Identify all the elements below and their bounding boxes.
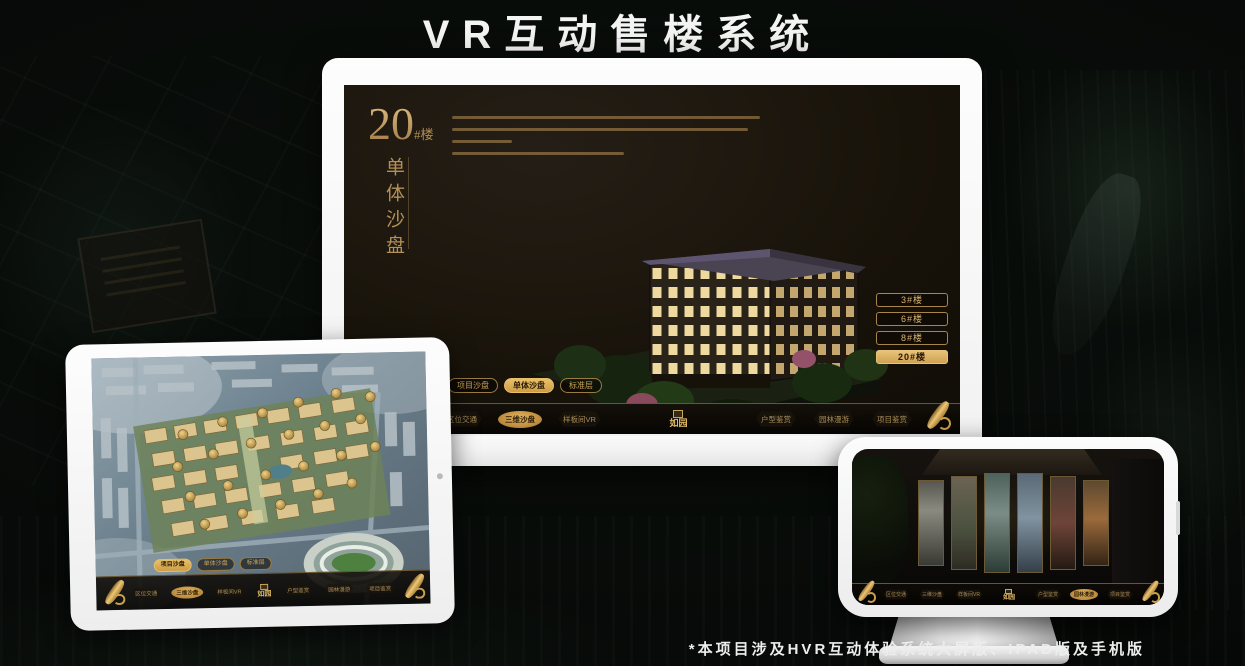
mode-tab-label: 单体沙盘 <box>204 561 228 568</box>
page-title: VR互动售楼系统 <box>0 2 1245 60</box>
nav-item[interactable]: 区位交通 <box>882 589 910 600</box>
building-number: 20 <box>368 98 414 149</box>
nav-item[interactable]: 园林漫游 <box>812 411 856 428</box>
mode-tab-label: 单体沙盘 <box>513 381 545 390</box>
mode-tab[interactable]: 项目沙盘 <box>448 378 498 393</box>
floor-button-label: 8#楼 <box>901 333 923 343</box>
gallery-panel[interactable] <box>984 473 1010 573</box>
phone-screen: 区位交通三维沙盘样板间VR 如园 户型鉴赏园林漫游项目鉴赏 <box>852 449 1164 605</box>
monitor-tab-group: 项目沙盘单体沙盘标准层 <box>448 378 602 393</box>
ruyuan-logo-text: 如园 <box>1003 595 1015 601</box>
floor-button-group: 3#楼6#楼8#楼20#楼 <box>876 293 948 364</box>
description-line <box>452 140 512 143</box>
phone-nav-right: 户型鉴赏园林漫游项目鉴赏 <box>1034 589 1134 600</box>
tablet-device: 项目沙盘单体沙盘标准层 区位交通三维沙盘样板间VR 如园 户型鉴赏园林漫游项目鉴… <box>65 337 455 631</box>
mode-tab-label: 项目沙盘 <box>457 381 489 390</box>
nav-item-label: 样板间VR <box>217 589 241 596</box>
floor-button-label: 3#楼 <box>901 295 923 305</box>
gallery-foliage <box>852 455 908 585</box>
nav-item-label: 区位交通 <box>447 415 477 424</box>
nav-item-label: 三维沙盘 <box>176 590 198 596</box>
nav-item[interactable]: 园林漫游 <box>323 583 355 596</box>
nav-item-label: 项目鉴赏 <box>369 586 391 592</box>
mode-tab-label: 项目沙盘 <box>161 562 185 569</box>
nav-item-label: 园林漫游 <box>328 587 350 593</box>
background-certificate-frame <box>77 219 216 334</box>
nav-item-label: 户型鉴赏 <box>761 415 791 424</box>
gallery-panel[interactable] <box>1050 476 1076 570</box>
gallery-panel[interactable] <box>918 480 944 566</box>
page: VR互动售楼系统 20#楼 单体沙盘 <box>0 0 1245 666</box>
nav-item[interactable]: 项目鉴赏 <box>364 582 396 595</box>
footnote: *本项目涉及HVR互动体验系统大屏版、IPAD版及手机版 <box>689 638 1145 659</box>
floor-button[interactable]: 3#楼 <box>876 293 948 307</box>
nav-item-label: 项目鉴赏 <box>877 415 907 424</box>
nav-item[interactable]: 户型鉴赏 <box>754 411 798 428</box>
description-text-lines <box>452 107 782 164</box>
floor-button-label: 6#楼 <box>901 314 923 324</box>
mode-tab[interactable]: 单体沙盘 <box>504 378 554 393</box>
gallery-panel[interactable] <box>1017 473 1043 573</box>
phone-nav-left: 区位交通三维沙盘样板间VR <box>882 589 984 600</box>
tablet-nav-right: 户型鉴赏园林漫游项目鉴赏 <box>282 582 396 596</box>
scroll-curl <box>866 592 877 603</box>
scroll-icon[interactable] <box>400 574 427 601</box>
nav-item[interactable]: 户型鉴赏 <box>1034 589 1062 600</box>
nav-item[interactable]: 园林漫游 <box>1070 589 1098 600</box>
nav-item[interactable]: 项目鉴赏 <box>1106 589 1134 600</box>
panel-title-vertical: 单体沙盘 <box>380 157 407 261</box>
nav-item-label: 三维沙盘 <box>922 592 942 598</box>
phone-device: 区位交通三维沙盘样板间VR 如园 户型鉴赏园林漫游项目鉴赏 <box>838 437 1178 617</box>
ruyuan-logo[interactable]: 如园 <box>1003 589 1015 601</box>
tablet-nav-left: 区位交通三维沙盘样板间VR <box>130 585 246 599</box>
monitor-nav-left: 区位交通三维沙盘样板间VR <box>440 411 603 428</box>
floor-button[interactable]: 20#楼 <box>876 350 948 364</box>
floor-button[interactable]: 6#楼 <box>876 312 948 326</box>
mode-tab[interactable]: 项目沙盘 <box>154 558 192 572</box>
ruyuan-logo-text: 如园 <box>669 419 687 428</box>
tablet-screen: 项目沙盘单体沙盘标准层 区位交通三维沙盘样板间VR 如园 户型鉴赏园林漫游项目鉴… <box>91 352 430 611</box>
description-line <box>452 116 760 119</box>
nav-item[interactable]: 项目鉴赏 <box>870 411 914 428</box>
nav-item-label: 项目鉴赏 <box>1110 592 1130 598</box>
building-hero-block: 20#楼 单体沙盘 <box>368 101 434 261</box>
nav-item-label: 园林漫游 <box>1074 592 1094 598</box>
ruyuan-logo[interactable]: 如园 <box>669 410 687 428</box>
floor-button-label: 20#楼 <box>898 352 926 362</box>
ruyuan-seal-icon <box>260 583 268 589</box>
gallery-wall <box>1112 459 1164 589</box>
scroll-icon[interactable] <box>100 580 127 607</box>
mode-tab[interactable]: 单体沙盘 <box>197 558 235 572</box>
mode-tab-label: 标准层 <box>569 381 593 390</box>
scroll-curl <box>113 594 125 606</box>
nav-item-label: 户型鉴赏 <box>1038 592 1058 598</box>
gallery-panel[interactable] <box>1083 480 1109 566</box>
mode-tab-label: 标准层 <box>247 560 265 566</box>
nav-item[interactable]: 三维沙盘 <box>498 411 542 428</box>
nav-item-label: 样板间VR <box>563 415 596 424</box>
tablet-camera-dot <box>437 473 443 479</box>
nav-item[interactable]: 三维沙盘 <box>918 589 946 600</box>
scroll-icon[interactable] <box>922 401 952 431</box>
nav-item-label: 户型鉴赏 <box>287 587 309 593</box>
scroll-icon[interactable] <box>855 581 877 603</box>
monitor-nav-right: 户型鉴赏园林漫游项目鉴赏 <box>754 411 914 428</box>
nav-item[interactable]: 三维沙盘 <box>171 586 203 599</box>
scroll-curl <box>413 587 425 599</box>
nav-item-label: 样板间VR <box>958 592 980 598</box>
description-line <box>452 152 624 155</box>
nav-item-label: 园林漫游 <box>819 415 849 424</box>
gallery-panels <box>910 471 1116 575</box>
phone-navbar: 区位交通三维沙盘样板间VR 如园 户型鉴赏园林漫游项目鉴赏 <box>852 583 1164 605</box>
scroll-curl <box>938 417 951 430</box>
ruyuan-logo[interactable]: 如园 <box>257 583 271 597</box>
mode-tab[interactable]: 标准层 <box>560 378 602 393</box>
ruyuan-seal-icon <box>673 410 683 418</box>
gallery-panel[interactable] <box>951 476 977 570</box>
nav-item-label: 区位交通 <box>135 591 157 597</box>
scroll-curl <box>1150 592 1161 603</box>
nav-item[interactable]: 样板间VR <box>556 411 603 428</box>
tablet-navbar: 区位交通三维沙盘样板间VR 如园 户型鉴赏园林漫游项目鉴赏 <box>96 569 431 610</box>
nav-item-label: 区位交通 <box>886 592 906 598</box>
nav-item[interactable]: 样板间VR <box>212 585 246 598</box>
ruyuan-seal-icon <box>1005 589 1012 594</box>
building-number-suffix: #楼 <box>414 127 434 142</box>
nav-item-label: 三维沙盘 <box>505 415 535 424</box>
scroll-icon[interactable] <box>1139 581 1161 603</box>
background-river <box>1037 165 1153 364</box>
phone-side-button <box>1176 501 1180 535</box>
hero-divider-line <box>408 157 409 249</box>
ruyuan-logo-text: 如园 <box>257 590 271 597</box>
mode-tab[interactable]: 标准层 <box>240 557 272 571</box>
nav-item[interactable]: 区位交通 <box>130 587 162 600</box>
nav-item[interactable]: 样板间VR <box>954 589 984 600</box>
floor-button[interactable]: 8#楼 <box>876 331 948 345</box>
description-line <box>452 128 748 131</box>
tablet-tab-group: 项目沙盘单体沙盘标准层 <box>154 557 272 572</box>
nav-item[interactable]: 户型鉴赏 <box>282 583 314 596</box>
